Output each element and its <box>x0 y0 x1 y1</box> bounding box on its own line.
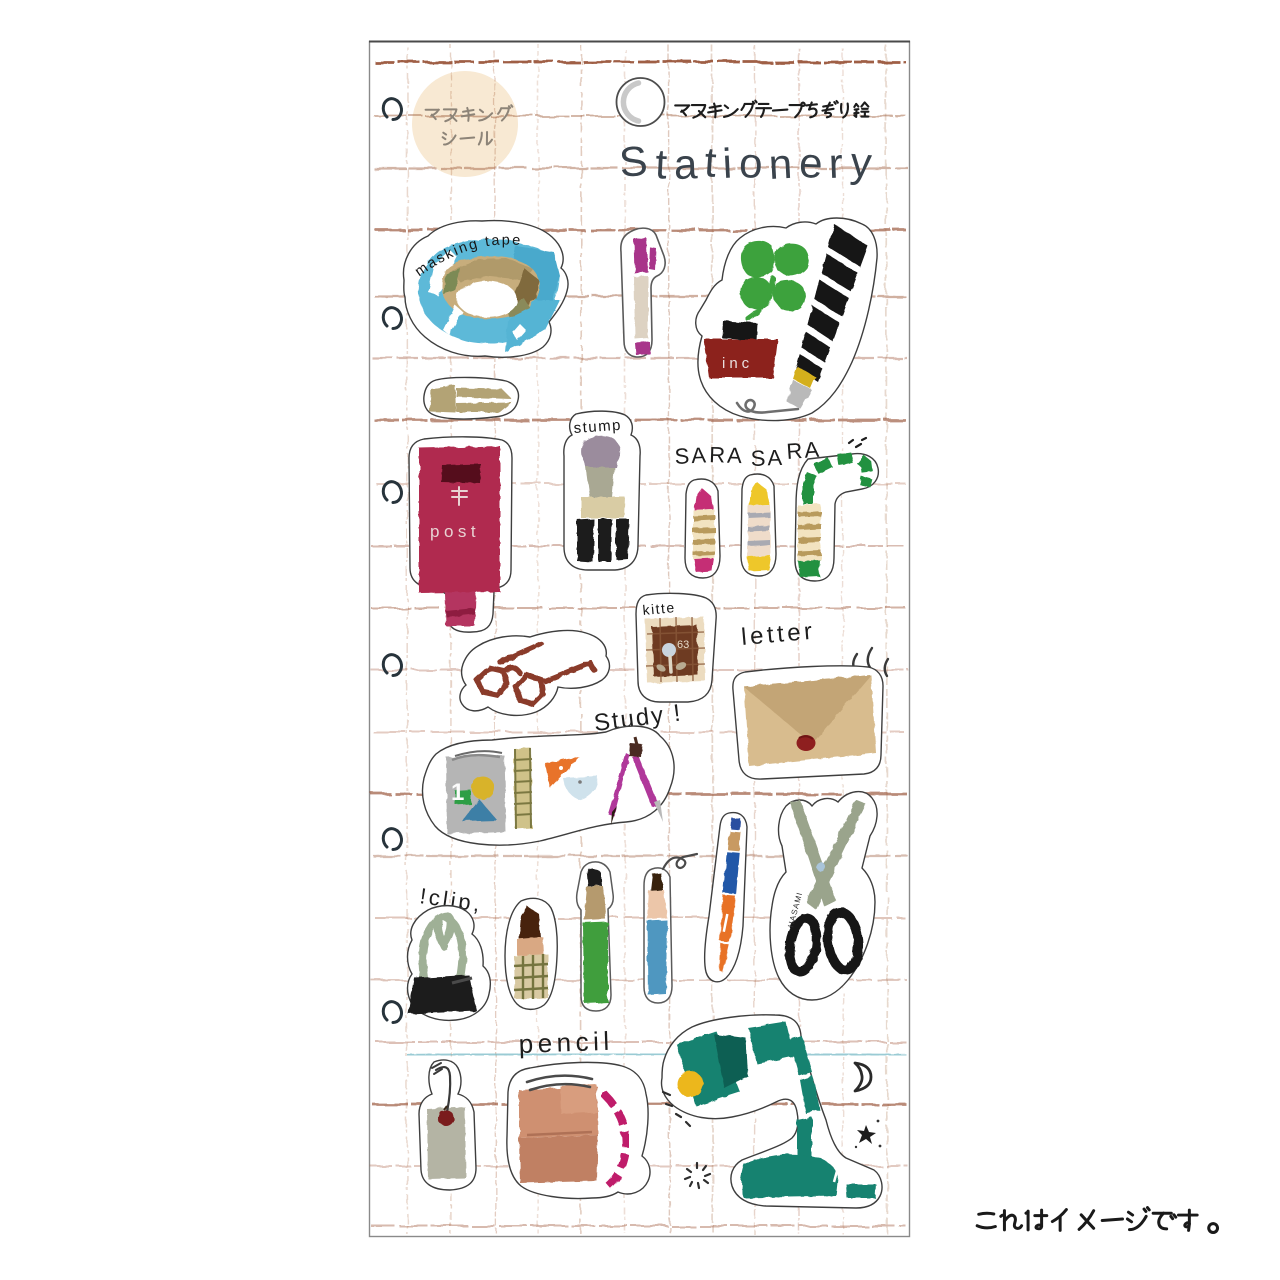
svg-text:SA: SA <box>674 442 709 469</box>
svg-text:n: n <box>767 140 793 188</box>
svg-text:RA: RA <box>709 442 744 468</box>
svg-text:1: 1 <box>451 779 464 806</box>
svg-text:inc: inc <box>722 355 753 372</box>
svg-text:e: e <box>798 139 823 187</box>
svg-text:y: y <box>849 138 873 186</box>
svg-text:SA: SA <box>750 445 784 471</box>
svg-text:r: r <box>828 140 844 187</box>
svg-text:63: 63 <box>677 639 689 651</box>
svg-text:kitte: kitte <box>642 599 676 618</box>
svg-text:a: a <box>673 140 699 188</box>
svg-text:stump: stump <box>573 417 622 437</box>
svg-text:pencil: pencil <box>518 1026 614 1059</box>
svg-text:post: post <box>430 522 480 541</box>
svg-text:o: o <box>738 139 763 187</box>
svg-text:S: S <box>617 137 649 186</box>
